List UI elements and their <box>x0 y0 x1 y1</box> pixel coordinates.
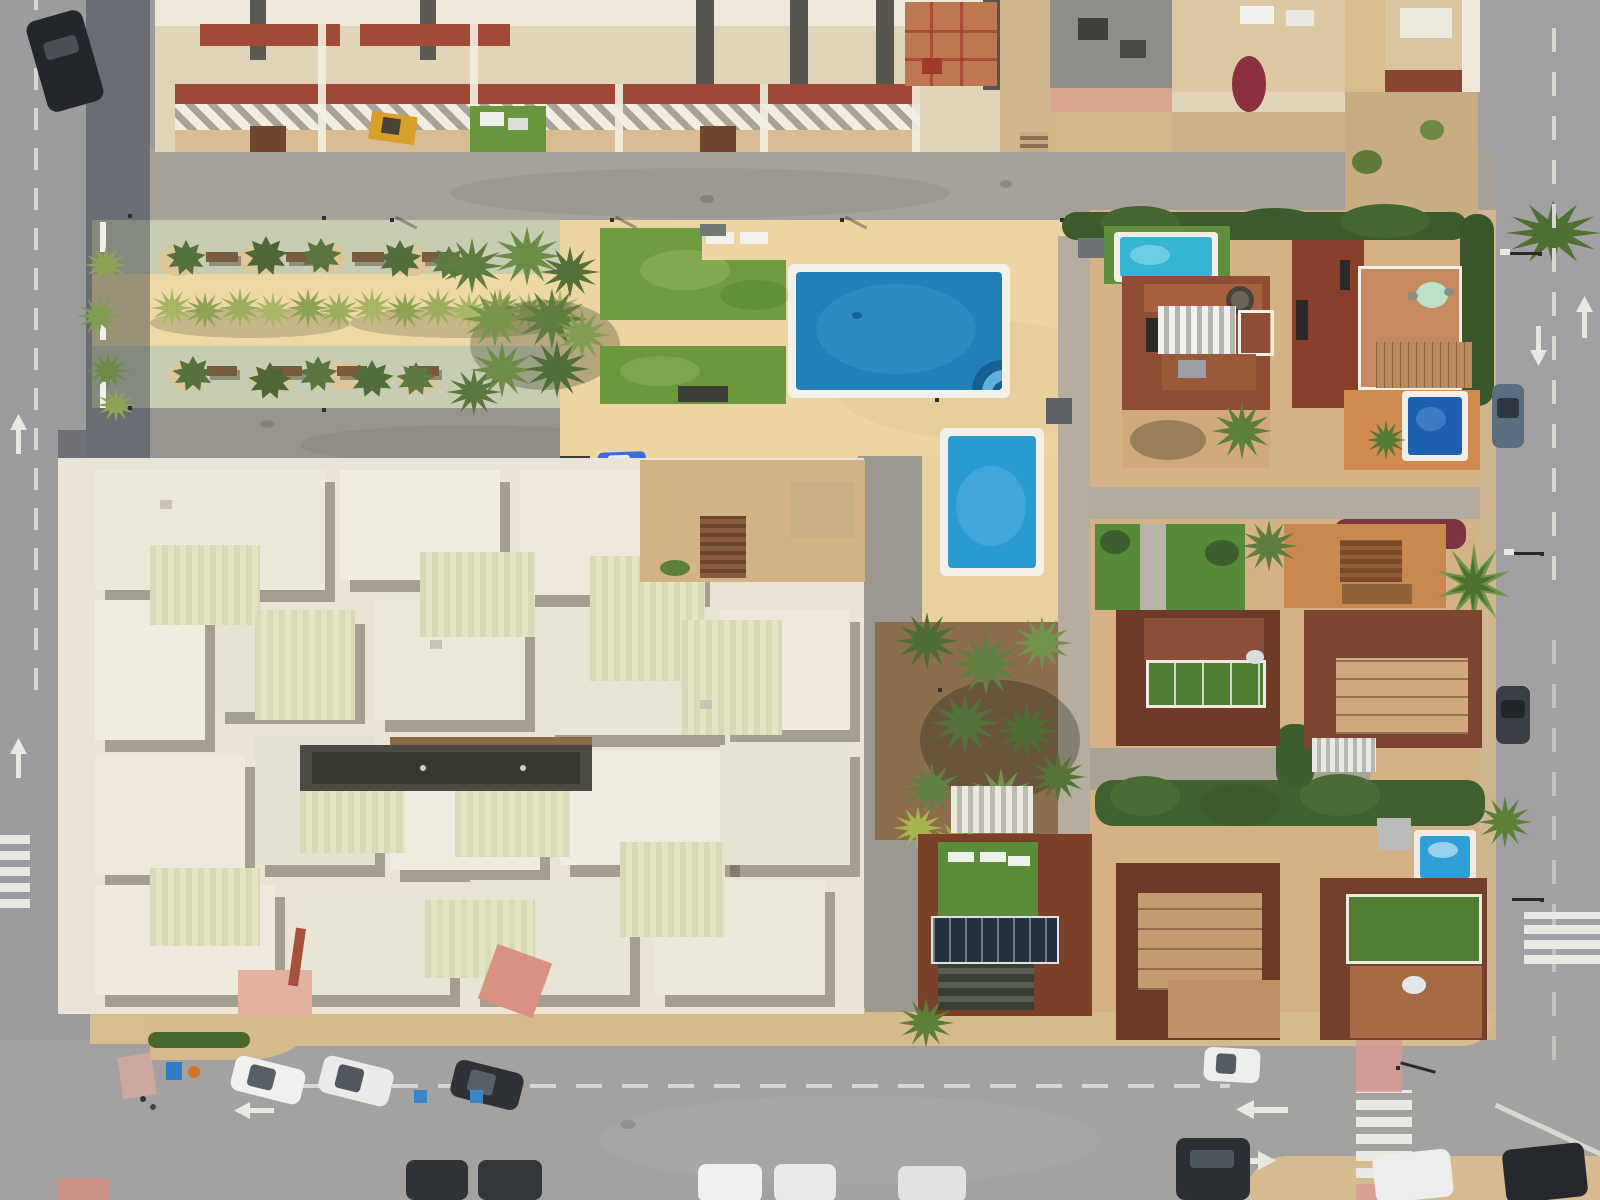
entrance-hedge <box>148 1032 250 1048</box>
dark-loungers <box>938 964 1034 1010</box>
pergola-shadow <box>1342 584 1412 604</box>
hedge-bump <box>1230 208 1320 240</box>
parking-sign-blue <box>414 1090 427 1103</box>
villa1-lower-deck <box>1162 354 1256 390</box>
park-bench <box>352 252 384 262</box>
villa6-lower-deck <box>1168 980 1280 1038</box>
tree-shadow <box>1130 420 1206 460</box>
patio-shrub <box>660 560 690 576</box>
pink-entrance <box>238 970 312 1016</box>
road-arrow-up-stem <box>1582 312 1587 338</box>
manhole <box>700 195 714 203</box>
satellite-dish <box>1402 976 1426 994</box>
skylight-panel <box>150 868 260 946</box>
parked-car-silver <box>898 1166 966 1200</box>
salmon-facade <box>1050 88 1172 112</box>
lane-dashes-right-road <box>1552 640 1556 1060</box>
deck-lamp <box>938 688 942 692</box>
villa7-turf-terrace <box>1346 894 1482 964</box>
tiled-roof <box>905 2 997 86</box>
parking-sign-blue <box>470 1090 483 1103</box>
skylight-panel <box>255 610 355 720</box>
patio-pergola-slats <box>700 516 746 578</box>
sun-lounger <box>948 852 974 862</box>
forklift-cab <box>381 117 401 135</box>
lamp-arm <box>1512 898 1542 901</box>
road-arrow-down-stem <box>1536 326 1541 350</box>
pool-dark-spot <box>852 312 862 319</box>
roof-gap <box>790 0 808 90</box>
car-windshield <box>246 1064 277 1092</box>
parked-car-white <box>774 1164 836 1200</box>
skylight-panel <box>420 552 535 637</box>
red-brick-band <box>360 24 510 46</box>
garden-fence-white <box>100 222 106 252</box>
central-courtyard-floor <box>312 752 580 784</box>
solar-panel-grid <box>933 918 1057 962</box>
manhole <box>1000 180 1012 188</box>
villa2-chair <box>1408 292 1418 300</box>
patio-gray-box <box>508 118 528 130</box>
villa2-chair <box>1444 288 1454 296</box>
skylight-panel <box>620 842 725 937</box>
rooftop-vent <box>160 500 172 509</box>
lawn-dark-block <box>678 386 728 402</box>
villa1-pergola-slats <box>1158 306 1236 354</box>
lane-dashes-left-road <box>34 0 38 690</box>
outdoor-kitchen-box <box>1078 238 1104 258</box>
pedestrian <box>150 1104 156 1110</box>
tile-line <box>905 58 997 61</box>
pool-sparkle <box>1428 842 1458 858</box>
pink-paint-patch <box>117 1053 157 1099</box>
street-lamp <box>390 218 394 222</box>
villa1-window <box>1146 318 1158 352</box>
garden-shrub <box>1205 540 1239 566</box>
car-windshield <box>42 34 80 61</box>
patio-white-box <box>480 112 504 126</box>
roof-object <box>1120 40 1146 58</box>
side-lane <box>1000 0 1050 152</box>
patio-band <box>1050 112 1172 152</box>
car-windshield <box>334 1064 365 1094</box>
patio-band <box>1172 112 1345 152</box>
tile-line <box>905 30 997 33</box>
crosswalk-left-road <box>0 830 30 908</box>
rooftop-vent <box>430 640 442 649</box>
house-divider-wall <box>760 84 768 152</box>
sun-lounger <box>740 232 768 244</box>
crosswalk-right-road <box>1524 912 1600 964</box>
villa7-pool <box>1420 836 1470 878</box>
car-windshield <box>1501 700 1525 718</box>
right-road <box>1478 0 1600 1200</box>
roof-block <box>95 755 245 875</box>
villa-lane-row2 <box>1090 487 1480 519</box>
deck-lamp <box>935 398 939 402</box>
car-windshield <box>1190 1150 1234 1168</box>
hedge-bump <box>1340 204 1430 238</box>
sun-lounger <box>1008 856 1030 866</box>
villa3-pergola-frame <box>1146 660 1266 708</box>
roof-object <box>1078 18 1108 40</box>
sign-orange-disc <box>188 1066 200 1078</box>
pool-water-light <box>1416 407 1446 431</box>
patio-pergola <box>700 126 736 152</box>
tile-red-box <box>922 58 942 74</box>
villa1-pool <box>1120 237 1212 277</box>
manhole <box>260 420 274 428</box>
road-arrow-up-stem <box>16 752 21 778</box>
garden-lamp <box>128 214 132 218</box>
villa6-railing-lines <box>1138 893 1262 990</box>
dirt-bush <box>1352 150 1382 174</box>
road-arrow-left-stem <box>1254 1107 1288 1113</box>
lane-dashes-right-road <box>1552 20 1556 580</box>
utility-box <box>700 224 726 236</box>
lamp-head <box>1500 249 1510 255</box>
villa1-railing <box>1238 310 1274 356</box>
parked-car-white <box>1372 1148 1455 1200</box>
main-pool <box>796 272 1002 390</box>
pool-water-light <box>1130 245 1170 265</box>
second-pool <box>948 436 1036 568</box>
row2-garden-path <box>1140 524 1166 610</box>
garden-lamp <box>322 216 326 220</box>
pool-water-light <box>956 466 1026 546</box>
hedge-bump <box>1110 776 1180 816</box>
roof-block <box>720 745 850 865</box>
petanque-court <box>790 482 854 538</box>
courtyard-dot <box>520 765 526 771</box>
house-divider-wall <box>318 24 326 152</box>
aerial-photo <box>0 0 1600 1200</box>
parked-car-dark <box>478 1160 542 1200</box>
villa2-window <box>1340 260 1350 290</box>
rooftop-vent <box>700 700 712 709</box>
parked-car-gray <box>1492 384 1524 448</box>
villa1-table <box>1178 360 1206 378</box>
manhole <box>620 1120 636 1129</box>
street-lamp <box>610 218 614 222</box>
roof-gap <box>876 0 894 90</box>
hedge-bump <box>1200 784 1280 826</box>
car-windshield <box>1497 398 1519 418</box>
garden-lamp <box>322 408 326 412</box>
skylight-panel <box>150 545 260 625</box>
pool-water-light <box>816 284 976 374</box>
sun-lounger <box>980 852 1006 862</box>
pink-paint-patch <box>58 1178 110 1200</box>
street-lamp <box>840 218 844 222</box>
villa2-table <box>1416 282 1448 308</box>
parked-car-white <box>1203 1047 1261 1084</box>
roof-gap <box>696 0 714 90</box>
hedge-bump <box>1400 782 1470 820</box>
terrace-pergola <box>1340 540 1402 582</box>
villa2-lattice-lines <box>1376 342 1472 388</box>
pedestrian <box>140 1096 146 1102</box>
gray-roof-terrace <box>1050 0 1172 88</box>
lamp-post <box>1396 1066 1400 1070</box>
skylight-panel <box>682 620 782 735</box>
tile-line <box>960 2 963 86</box>
parking-sign-blue <box>166 1062 182 1080</box>
top-right-white-edge <box>1462 0 1480 92</box>
lawn-light-patch <box>620 356 700 386</box>
road-arrow-up-stem <box>16 428 21 454</box>
parked-car-dark <box>406 1160 468 1200</box>
lamp-arm <box>1510 552 1542 555</box>
side-lane-stairs <box>1020 132 1048 152</box>
lawn-dark-patch <box>720 280 790 310</box>
villa4-railing-lines <box>1336 658 1468 734</box>
lane-dashes-bottom-road <box>300 1084 1230 1088</box>
lamp-arm <box>1506 252 1540 255</box>
street-shade <box>450 168 950 218</box>
road-arrow-left-stem <box>248 1108 274 1113</box>
red-brick-band <box>175 84 920 104</box>
white-slat-pergola <box>1312 738 1376 772</box>
stair-walls-strip <box>175 104 920 130</box>
bougainvillea <box>1232 56 1266 112</box>
garden-shrub <box>1100 530 1130 554</box>
park-bench <box>206 252 238 262</box>
rooftop-ac-unit <box>1400 8 1452 38</box>
parked-car-dark <box>1501 1142 1588 1200</box>
hedge-bump <box>1300 774 1380 816</box>
storage-shed <box>1046 398 1072 424</box>
parked-car-dark <box>1496 686 1530 744</box>
lamp-head <box>1504 549 1514 555</box>
road-blotch-bottom <box>600 1095 1100 1185</box>
courtyard-dot <box>420 765 426 771</box>
dirt-bush <box>1420 120 1444 140</box>
villa2-window <box>1296 300 1308 340</box>
parked-car-white <box>698 1164 762 1200</box>
car-windshield <box>1216 1053 1237 1074</box>
rooftop-ac-unit <box>1286 10 1314 26</box>
rooftop-ac-unit <box>1240 6 1274 24</box>
patio-pergola <box>250 126 286 152</box>
patio-band <box>175 130 920 152</box>
parked-car-dark <box>1176 1138 1250 1200</box>
satellite-dish <box>1246 650 1264 664</box>
villa7-shed <box>1377 818 1411 850</box>
house-divider-wall <box>615 84 623 152</box>
garden-lamp <box>128 406 132 410</box>
villa5-pergola <box>951 786 1033 833</box>
villa2-pool <box>1408 397 1462 455</box>
